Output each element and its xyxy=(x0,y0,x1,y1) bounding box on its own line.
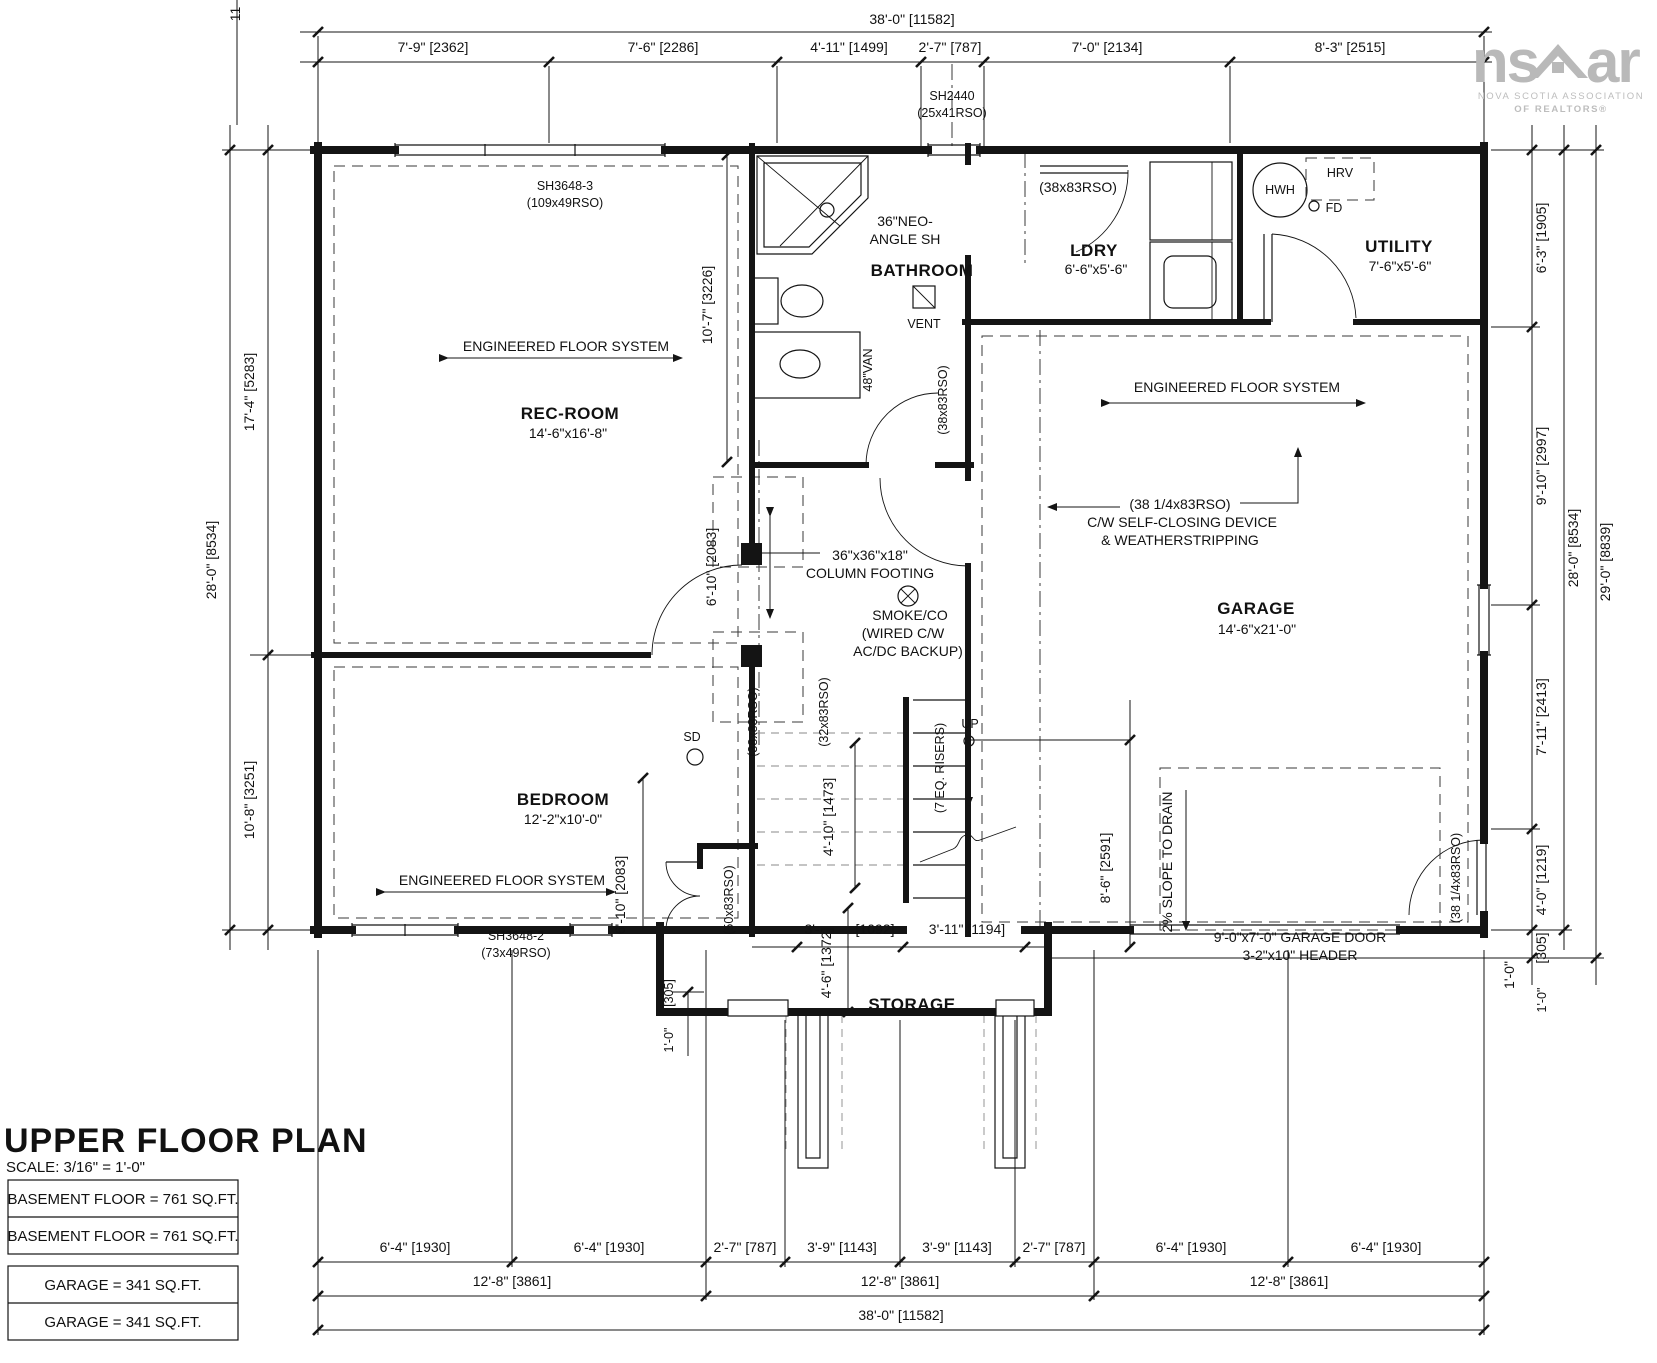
garage-slab-dashed-outline xyxy=(1160,768,1440,930)
dryer-door xyxy=(1164,256,1216,308)
garage-area-2: GARAGE = 341 SQ.FT. xyxy=(44,1314,201,1331)
floor-plan-canvas: 38'-0" [11582] 7'-9" [2362] 7'-6" [2286]… xyxy=(0,0,1657,1363)
dim-right-seg: 6'-3" [1905] xyxy=(1533,203,1549,274)
floor-plan-page: 38'-0" [11582] 7'-9" [2362] 7'-6" [2286]… xyxy=(0,0,1657,1363)
hwh-label: HWH xyxy=(1265,183,1295,197)
entry-door-arc xyxy=(1409,840,1484,915)
dim-bottom-seg: 2'-7" [787] xyxy=(1023,1239,1086,1255)
dim-top-overall: 38'-0" [11582] xyxy=(869,11,954,27)
vanity-sink xyxy=(780,350,820,378)
closet-bifold-arcs xyxy=(666,862,700,930)
dim-top-seg: 8'-3" [2515] xyxy=(1315,39,1386,55)
garage-area-1: GARAGE = 341 SQ.FT. xyxy=(44,1277,201,1294)
basement-area-2: BASEMENT FLOOR = 761 SQ.FT. xyxy=(7,1228,238,1245)
dim-offset-ft-right: 1'-0" xyxy=(1535,988,1549,1013)
dim-bottom-seg: 6'-4" [1930] xyxy=(1156,1239,1227,1255)
door-rso-garage-hall: (38x83RSO) xyxy=(936,365,950,434)
window-label-sh3648-2: SH3648-2 xyxy=(488,929,544,943)
dim-storage-left-mm: [1092] xyxy=(856,921,895,937)
plan-text: 38'-0" [11582] 7'-9" [2362] 7'-6" [2286]… xyxy=(203,7,1613,1323)
window-label-sh3648-3: SH3648-3 xyxy=(537,179,593,193)
dim-top-seg: 2'-7" [787] xyxy=(919,39,982,55)
dim-right-seg: 4'-0" [1219] xyxy=(1533,845,1549,916)
ldry-door-leaf xyxy=(1040,166,1128,173)
sd-label: SD xyxy=(683,730,700,744)
footing-label-1: 36"x36"x18" xyxy=(832,547,908,563)
toilet-tank xyxy=(754,278,778,324)
neo-angle-shower xyxy=(757,156,868,254)
window-rso-sh3648-3: (109x49RSO) xyxy=(527,196,603,210)
dim-bottom-seg: 6'-4" [1930] xyxy=(380,1239,451,1255)
window-bedroom-1 xyxy=(352,923,458,937)
risers-label: (7 EQ. RISERS) xyxy=(933,723,947,813)
dim-top-seg: 4'-11" [1499] xyxy=(810,39,887,55)
bedroom-door-arc xyxy=(652,565,742,655)
window-sh2440 xyxy=(928,143,980,157)
dim-right-overall: 28'-0" [8534] xyxy=(1565,509,1581,587)
garage-door-label: 9'-0"x7'-0" GARAGE DOOR xyxy=(1214,929,1386,945)
utility-door-leaf xyxy=(1264,234,1272,322)
dim-offset-mm: [305] xyxy=(662,979,676,1007)
entry-door-leaf xyxy=(1477,840,1486,915)
dim-bottom-mid: 12'-8" [3861] xyxy=(1250,1273,1328,1289)
sd-symbol xyxy=(687,749,703,765)
room-size-utility: 7'-6"x5'-6" xyxy=(1369,258,1432,274)
door-rso-ldry: (38x83RSO) xyxy=(1039,179,1117,195)
self-close-label: C/W SELF-CLOSING DEVICE xyxy=(1087,514,1277,530)
nsar-logo: ns ar NOVA SCOTIA ASSOCIATION OF REALTOR… xyxy=(1472,28,1644,115)
room-label-garage: GARAGE xyxy=(1217,599,1295,618)
closet-wall xyxy=(700,846,755,866)
up-label: UP xyxy=(961,717,978,731)
utility-door-arc xyxy=(1272,234,1356,318)
window-garage-east xyxy=(1477,585,1491,655)
vanity-counter xyxy=(754,332,860,398)
door-swings xyxy=(652,166,1484,930)
fd-label: FD xyxy=(1326,201,1343,215)
dim-right-seg: 9'-10" [2997] xyxy=(1533,427,1549,505)
dim-closet-v: 6'-10" [2083] xyxy=(612,856,628,934)
laundry-fixtures xyxy=(1150,162,1232,320)
smoke-label-2: (WIRED C/W xyxy=(862,625,945,641)
dim-storage-right: 3'-11" [1194] xyxy=(929,921,1005,937)
logo-association-line2: OF REALTORS® xyxy=(1514,104,1607,115)
dim-top-seg: 7'-9" [2362] xyxy=(398,39,469,55)
dim-hall-mid: 6'-10" [2083] xyxy=(703,528,719,606)
dim-left-overall: 28'-0" [8534] xyxy=(203,521,219,599)
garage-header-label: 3-2"x10" HEADER xyxy=(1243,947,1358,963)
dim-right-seg: [305] xyxy=(1533,932,1549,963)
dim-top-seg: 7'-0" [2134] xyxy=(1072,39,1143,55)
dim-bottom-seg: 6'-4" [1930] xyxy=(574,1239,645,1255)
vent-label: VENT xyxy=(907,317,941,331)
plan-title: UPPER FLOOR PLAN xyxy=(4,1122,368,1160)
dim-bottom-seg: 3'-9" [1143] xyxy=(922,1239,992,1255)
dim-storage-depth: 4'-6" [1372] xyxy=(818,928,834,999)
vanity-label: 48"VAN xyxy=(861,348,875,391)
room-size-bedroom: 12'-2"x10'-0" xyxy=(524,811,602,827)
bathroom-door-arc xyxy=(866,393,938,465)
door-rso-32: (32x83RSO) xyxy=(817,677,831,746)
dim-bottom-seg: 6'-4" [1930] xyxy=(1351,1239,1422,1255)
efs-label-garage: ENGINEERED FLOOR SYSTEM xyxy=(1134,379,1340,395)
footing-label-2: COLUMN FOOTING xyxy=(806,565,934,581)
window-rso-sh2440: (25x41RSO) xyxy=(917,106,986,120)
storage-foundation-walls xyxy=(660,926,1048,1012)
door-rso-hall: (38x83RSO) xyxy=(746,687,760,756)
toilet-bowl xyxy=(781,285,823,317)
weatherstrip-label: & WEATHERSTRIPPING xyxy=(1101,532,1259,548)
room-label-ldry: LDRY xyxy=(1070,241,1118,260)
window-bedroom-2 xyxy=(570,923,612,937)
room-size-ldry: 6'-6"x5'-6" xyxy=(1065,261,1128,277)
dim-bottom-overall: 38'-0" [11582] xyxy=(858,1307,943,1323)
room-label-bedroom: BEDROOM xyxy=(517,790,609,809)
hrv-label: HRV xyxy=(1327,166,1354,180)
dim-left-top: 17'-4" [5283] xyxy=(241,353,257,431)
shower-label-1: 36"NEO- xyxy=(877,213,933,229)
column-footings xyxy=(713,477,803,722)
door-rso-entry: (38 1/4x83RSO) xyxy=(1449,833,1463,923)
washer xyxy=(1150,162,1232,240)
dim-top-cut: 11 xyxy=(227,7,243,22)
dim-hall-upper: 10'-7" [3226] xyxy=(699,266,715,344)
dim-offset-ft: 1'-0" xyxy=(662,1028,676,1053)
column-post xyxy=(741,645,762,667)
door-rso-closet: (50x83RSO) xyxy=(722,865,736,934)
logo-association-line1: NOVA SCOTIA ASSOCIATION xyxy=(1478,91,1644,102)
title-block: UPPER FLOOR PLAN SCALE: 3/16" = 1'-0" BA… xyxy=(4,1122,368,1340)
window-sh3648-3 xyxy=(395,143,665,157)
dim-left-bottom: 10'-8" [3251] xyxy=(241,761,257,839)
room-size-rec: 14'-6"x16'-8" xyxy=(529,425,607,441)
foundation-notch xyxy=(996,1000,1034,1016)
dim-garage-v: 8'-6" [2591] xyxy=(1097,833,1113,904)
dim-right-outer: 29'-0" [8839] xyxy=(1597,523,1613,601)
smoke-label-3: AC/DC BACKUP) xyxy=(853,643,963,659)
dim-bottom-seg: 3'-9" [1143] xyxy=(807,1239,877,1255)
dim-bottom-seg: 2'-7" [787] xyxy=(714,1239,777,1255)
window-label-sh2440: SH2440 xyxy=(929,89,974,103)
logo-text-right: ar xyxy=(1586,28,1640,95)
room-label-bathroom: BATHROOM xyxy=(871,261,974,280)
basement-area-1: BASEMENT FLOOR = 761 SQ.FT. xyxy=(7,1191,238,1208)
room-label-rec: REC-ROOM xyxy=(521,404,619,423)
shower-label-2: ANGLE SH xyxy=(870,231,941,247)
logo-text-left: ns xyxy=(1472,28,1538,95)
dim-bottom-mid: 12'-8" [3861] xyxy=(861,1273,939,1289)
smoke-label-1: SMOKE/CO xyxy=(872,607,948,623)
dim-stair-w: 4'-10" [1473] xyxy=(820,778,836,856)
slope-label: 2% SLOPE TO DRAIN xyxy=(1159,791,1175,932)
foundation-notch xyxy=(728,1000,788,1016)
column-post xyxy=(741,543,762,565)
door-rso-garage-man: (38 1/4x83RSO) xyxy=(1129,496,1230,512)
dim-right-seg: 7'-11" [2413] xyxy=(1533,678,1549,755)
window-rso-sh3648-2: (73x49RSO) xyxy=(481,946,550,960)
dim-bottom-mid: 12'-8" [3861] xyxy=(473,1273,551,1289)
dim-top-seg: 7'-6" [2286] xyxy=(628,39,699,55)
room-label-utility: UTILITY xyxy=(1365,237,1433,256)
room-label-storage: STORAGE xyxy=(868,995,955,1014)
plan-scale: SCALE: 3/16" = 1'-0" xyxy=(6,1159,145,1176)
footing-projections xyxy=(728,1000,1034,1168)
dim-right-seg: 1'-0" xyxy=(1501,961,1517,989)
room-size-garage: 14'-6"x21'-0" xyxy=(1218,621,1296,637)
efs-label-rec: ENGINEERED FLOOR SYSTEM xyxy=(463,338,669,354)
efs-label-bedroom: ENGINEERED FLOOR SYSTEM xyxy=(399,872,605,888)
floor-drain xyxy=(1309,201,1319,211)
